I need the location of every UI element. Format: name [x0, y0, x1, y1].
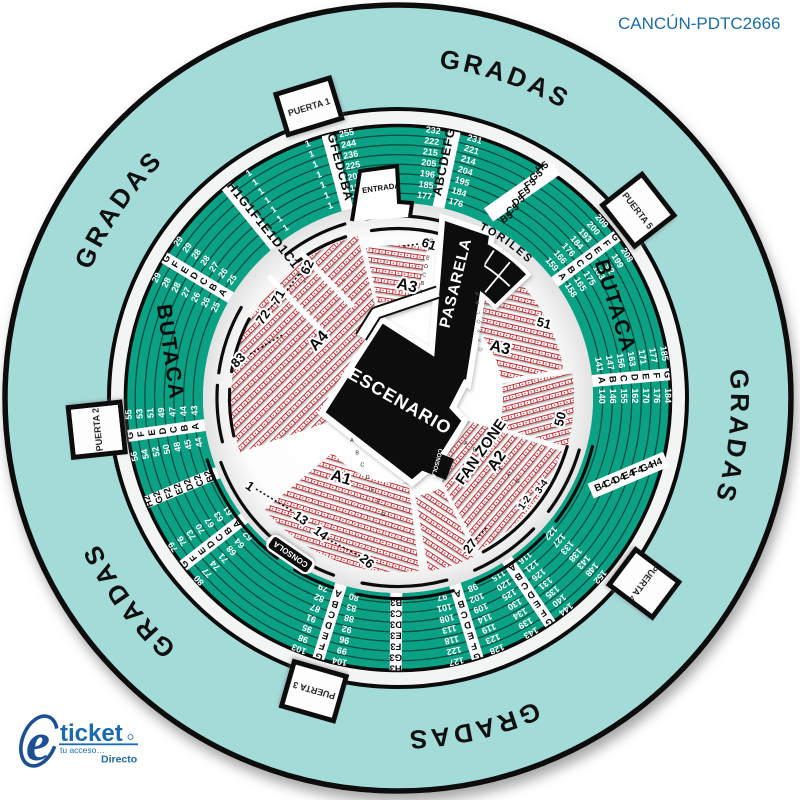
svg-text:E3: E3: [390, 629, 402, 640]
svg-text:C: C: [617, 374, 629, 382]
svg-text:C3: C3: [390, 607, 402, 618]
svg-text:A: A: [350, 438, 354, 444]
svg-text:C: C: [481, 454, 485, 460]
svg-text:205: 205: [421, 157, 437, 169]
svg-text:232: 232: [425, 124, 441, 136]
svg-text:D3: D3: [390, 618, 402, 629]
svg-text:92: 92: [341, 623, 353, 635]
svg-text:ticket: ticket: [60, 720, 123, 747]
svg-text:tu acceso…: tu acceso…: [60, 745, 105, 755]
svg-text:185: 185: [418, 179, 434, 191]
svg-text:177: 177: [416, 190, 432, 202]
svg-text:e: e: [26, 712, 50, 772]
svg-text:54: 54: [139, 448, 151, 460]
svg-text:A: A: [464, 441, 468, 447]
svg-text:162: 162: [630, 388, 640, 403]
svg-text:A: A: [595, 376, 607, 384]
svg-text:45: 45: [182, 439, 194, 451]
svg-text:49: 49: [156, 407, 167, 418]
svg-text:D: D: [628, 373, 640, 381]
svg-text:44: 44: [193, 436, 205, 448]
svg-text:50: 50: [161, 443, 173, 455]
svg-text:96: 96: [338, 634, 350, 646]
svg-text:184: 184: [663, 388, 673, 403]
svg-text:C: C: [360, 463, 364, 469]
svg-text:51: 51: [145, 408, 156, 419]
svg-text:CANCÚN-PDTC2666: CANCÚN-PDTC2666: [618, 14, 780, 33]
svg-text:E: E: [499, 466, 503, 472]
svg-text:B: B: [606, 375, 618, 383]
svg-text:99: 99: [336, 645, 348, 657]
svg-text:B: B: [355, 450, 359, 456]
svg-text:D: D: [490, 460, 494, 466]
svg-text:56: 56: [128, 450, 140, 462]
svg-text:47: 47: [167, 406, 178, 417]
svg-text:H3: H3: [389, 662, 401, 673]
svg-text:196: 196: [419, 168, 435, 180]
svg-text:D: D: [366, 475, 370, 481]
svg-text:215: 215: [422, 146, 438, 158]
svg-text:53: 53: [134, 408, 145, 419]
svg-text:Directo: Directo: [101, 754, 137, 766]
svg-text:155: 155: [619, 388, 629, 403]
svg-text:48: 48: [171, 441, 183, 453]
svg-text:170: 170: [641, 388, 651, 403]
svg-text:83: 83: [346, 602, 358, 614]
svg-text:88: 88: [343, 613, 355, 625]
svg-text:E: E: [639, 373, 651, 380]
svg-text:G: G: [515, 479, 519, 485]
svg-text:B: B: [473, 447, 477, 453]
svg-text:44: 44: [178, 406, 189, 417]
svg-text:43: 43: [189, 405, 200, 416]
svg-text:F3: F3: [390, 640, 401, 651]
svg-text:G: G: [661, 370, 673, 378]
svg-text:F: F: [650, 372, 661, 379]
svg-text:52: 52: [150, 446, 162, 458]
svg-text:222: 222: [424, 135, 440, 147]
svg-text:G: G: [125, 431, 137, 440]
svg-text:55: 55: [123, 409, 134, 420]
svg-text:176: 176: [652, 388, 662, 403]
svg-text:G: G: [381, 512, 385, 518]
svg-text:G3: G3: [389, 651, 402, 662]
svg-text:146: 146: [608, 389, 618, 404]
svg-text:E: E: [371, 487, 375, 493]
svg-text:140: 140: [597, 389, 607, 404]
